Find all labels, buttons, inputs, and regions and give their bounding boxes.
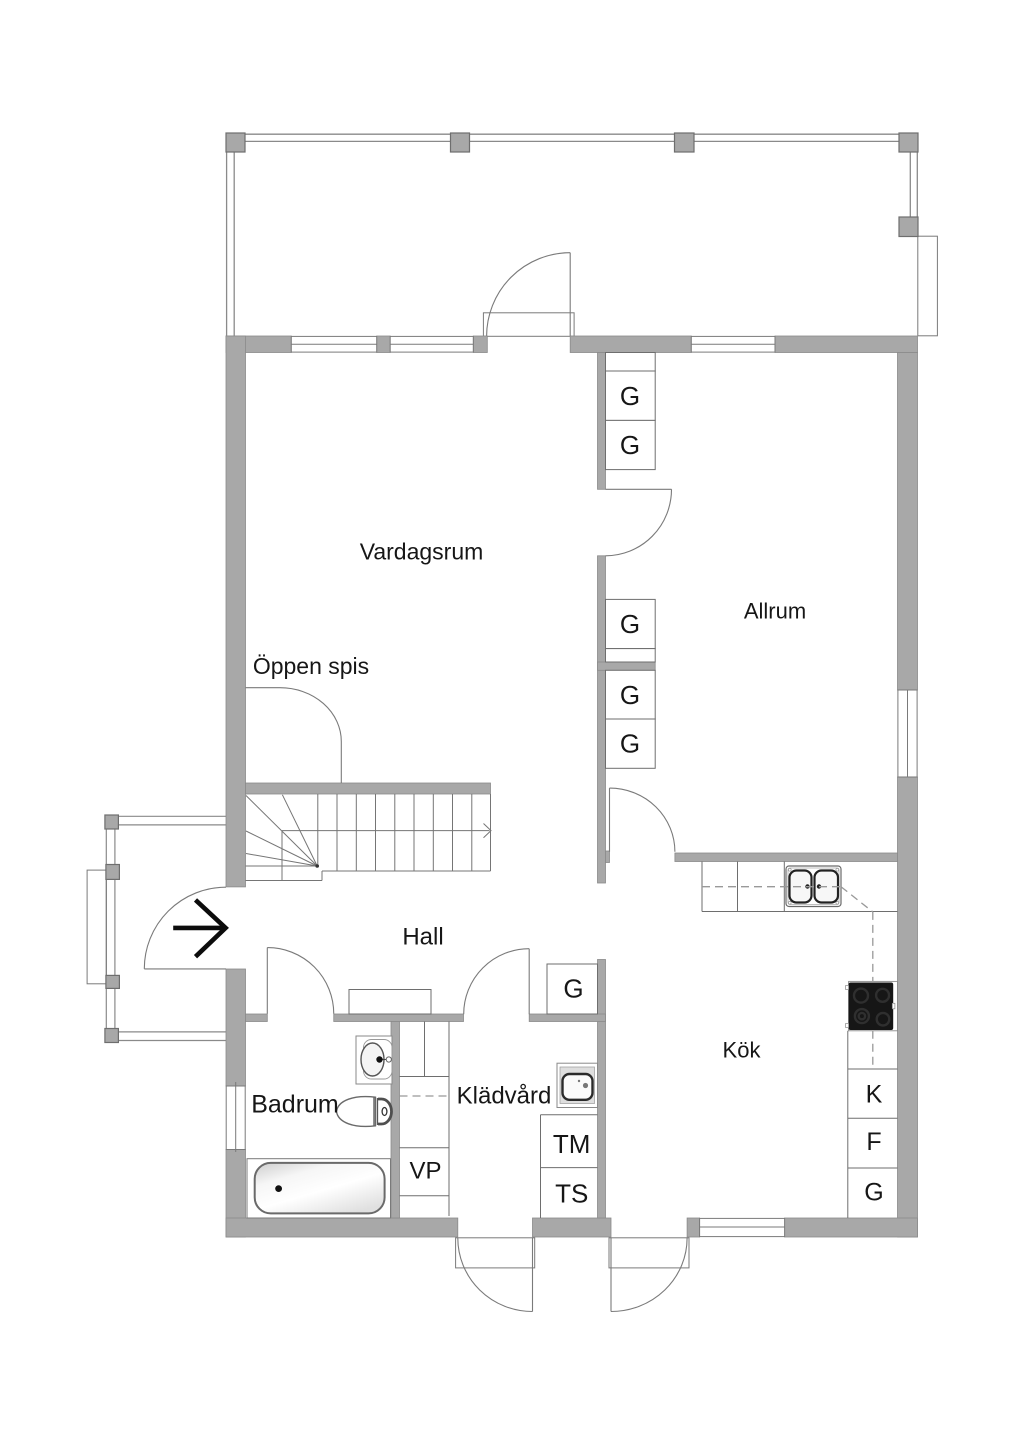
svg-text:G: G <box>864 1179 883 1207</box>
svg-text:VP: VP <box>409 1158 441 1185</box>
svg-text:Vardagsrum: Vardagsrum <box>360 539 484 565</box>
svg-text:G: G <box>563 974 583 1004</box>
svg-text:TM: TM <box>553 1129 591 1159</box>
svg-text:TS: TS <box>555 1179 588 1209</box>
svg-text:Öppen spis: Öppen spis <box>253 653 369 679</box>
svg-text:G: G <box>620 430 640 460</box>
svg-text:Kök: Kök <box>723 1038 762 1063</box>
svg-text:Badrum: Badrum <box>251 1091 339 1119</box>
svg-text:G: G <box>620 609 640 639</box>
svg-text:G: G <box>620 729 640 759</box>
svg-text:Klädvård: Klädvård <box>457 1083 552 1110</box>
svg-text:Hall: Hall <box>402 924 443 951</box>
svg-text:F: F <box>866 1128 881 1156</box>
svg-text:K: K <box>866 1081 883 1109</box>
svg-text:G: G <box>620 381 640 411</box>
svg-text:Allrum: Allrum <box>744 599 806 624</box>
svg-text:G: G <box>620 680 640 710</box>
